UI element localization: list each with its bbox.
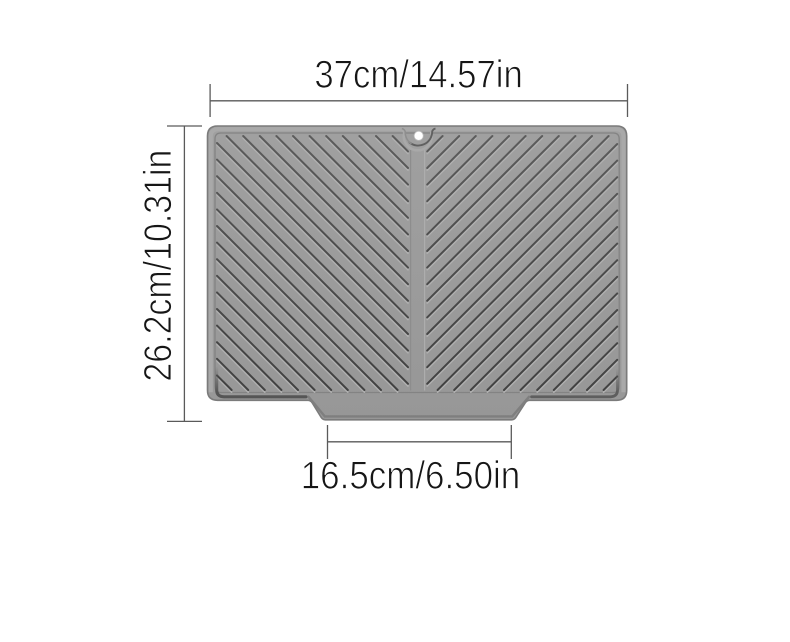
svg-text:37cm/14.57in: 37cm/14.57in — [314, 54, 523, 97]
svg-text:16.5cm/6.50in: 16.5cm/6.50in — [301, 454, 521, 497]
svg-text:26.2cm/10.31in: 26.2cm/10.31in — [137, 150, 180, 382]
